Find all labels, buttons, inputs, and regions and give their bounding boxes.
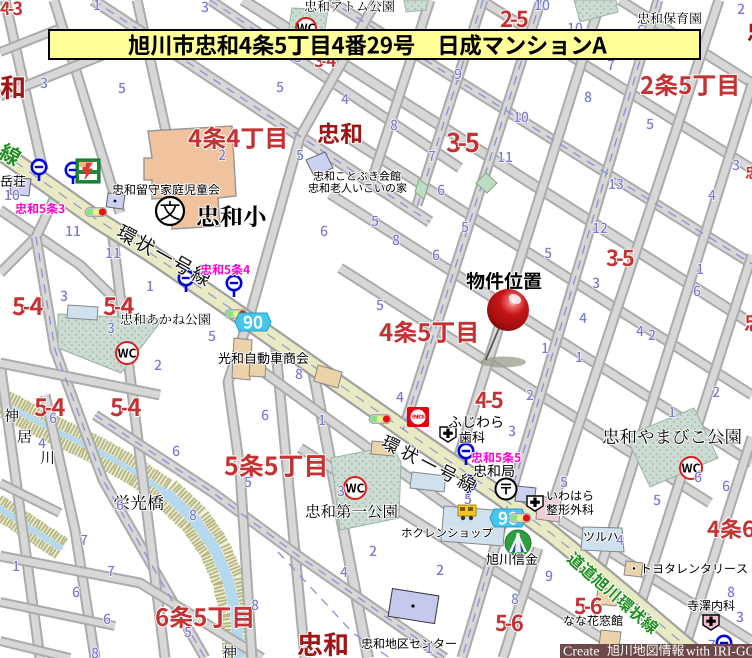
svg-text:Create: Create bbox=[563, 645, 600, 658]
svg-text:with IRI-GO: with IRI-GO bbox=[686, 644, 752, 658]
